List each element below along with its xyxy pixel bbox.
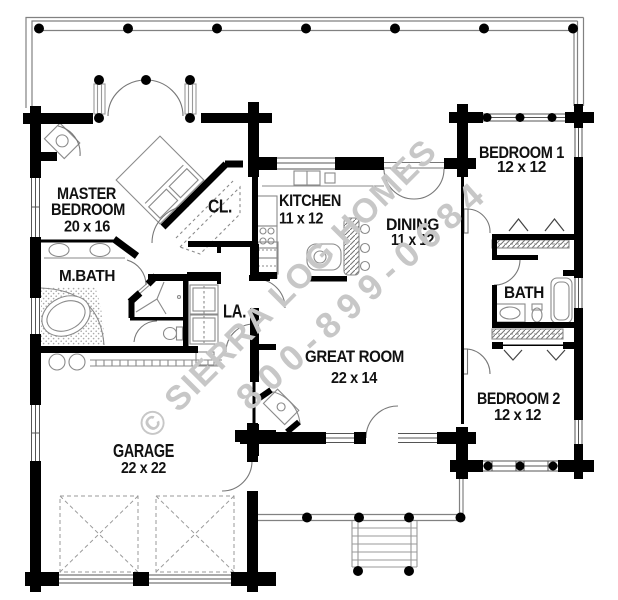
svg-text:KITCHEN: KITCHEN — [279, 191, 341, 210]
svg-text:M.BATH: M.BATH — [59, 268, 115, 285]
svg-text:11 x 12: 11 x 12 — [279, 211, 323, 228]
svg-text:GARAGE: GARAGE — [113, 441, 174, 461]
svg-text:BEDROOM 2: BEDROOM 2 — [477, 389, 560, 408]
svg-text:12 x 12: 12 x 12 — [497, 159, 546, 176]
svg-text:BEDROOM: BEDROOM — [51, 200, 125, 219]
svg-text:12 x 12: 12 x 12 — [494, 407, 541, 424]
svg-text:22 x 22: 22 x 22 — [121, 460, 166, 477]
svg-text:CL.: CL. — [208, 197, 232, 217]
svg-text:20 x 16: 20 x 16 — [64, 219, 110, 236]
svg-text:22 x 14: 22 x 14 — [331, 370, 377, 387]
svg-text:BATH: BATH — [504, 283, 544, 302]
